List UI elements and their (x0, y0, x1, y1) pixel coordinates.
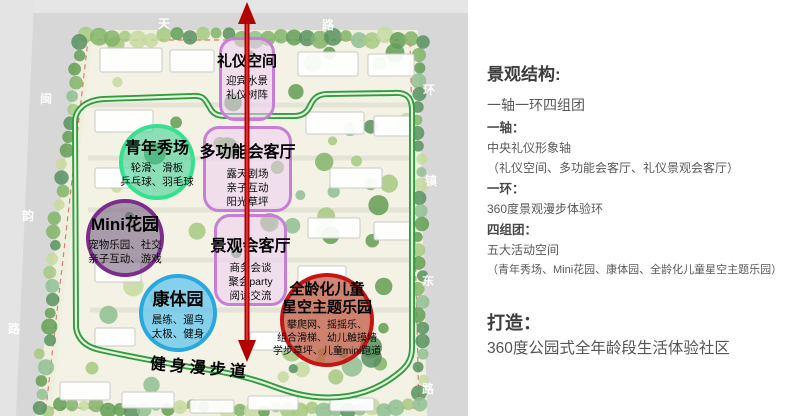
zone-title: 康体园 (153, 285, 204, 310)
zone-items: 露天剧场 亲子互动 阳光草坪 (227, 168, 269, 210)
panel-subtitle: 一轴一环四组团 (487, 96, 781, 114)
zone-item: 聚会party (228, 276, 272, 290)
zone-title: Mini花园 (91, 210, 159, 235)
zone-title: 全龄化儿童 (289, 281, 364, 298)
road-label: 路 (322, 16, 334, 33)
section-clusters-label: 四组团： (487, 223, 781, 237)
zone-fitness-garden: 康体园 晨练、遛鸟 太极、健身 (139, 274, 217, 352)
zone-all-age-children-park: 全龄化儿童 星空主题乐园 攀爬网、摇摇乐、 组合滑梯、幼儿触摸墙 学步草坪、儿童… (280, 273, 374, 367)
zone-item: 礼仪树阵 (226, 89, 268, 103)
zone-item: 露天剧场 (227, 168, 269, 182)
zone-items: 轮滑、滑板 乒乓球、羽毛球 (120, 162, 194, 190)
goal-label: 打造： (487, 311, 781, 335)
zone-items: 攀爬网、摇摇乐、 组合滑梯、幼儿触摸墙 学步草坪、儿童mini跑道 (273, 319, 381, 359)
zone-ceremony-space: 礼仪空间 迎宾水景 礼仪树阵 (219, 37, 275, 121)
slide: 天 路 闽 韵 路 环 镇 东 路 礼仪空间 迎宾水景 礼仪树阵 多功能会客厅 … (0, 0, 789, 416)
zone-items: 晨练、遛鸟 太极、健身 (152, 314, 205, 342)
section-clusters-line: 五大活动空间 (487, 243, 781, 257)
panel-title: 景观结构: (487, 64, 781, 86)
zone-multifunction-lounge: 多功能会客厅 露天剧场 亲子互动 阳光草坪 (203, 126, 292, 212)
zone-title: 多功能会客厅 (200, 138, 296, 162)
zone-landscape-lounge: 景观会客厅 商务会谈 聚会party 阅读交流 (214, 214, 287, 306)
road-label: 路 (422, 380, 434, 397)
goal-text: 360度公园式全年龄段生活体验社区 (487, 339, 781, 359)
zone-mini-garden: Mini花园 宠物乐园、社交 亲子互动、游戏 (86, 199, 164, 277)
site-plan-map: 天 路 闽 韵 路 环 镇 东 路 礼仪空间 迎宾水景 礼仪树阵 多功能会客厅 … (0, 0, 468, 416)
zone-title: 青年秀场 (125, 134, 189, 158)
zone-items: 商务会谈 聚会party 阅读交流 (228, 262, 272, 304)
zone-item: 晨练、遛鸟 (152, 314, 205, 328)
zone-item: 组合滑梯、幼儿触摸墙 (273, 332, 381, 345)
zone-items: 迎宾水景 礼仪树阵 (226, 75, 268, 103)
zone-item: 宠物乐园、社交 (88, 239, 162, 253)
section-ring-label: 一环： (487, 182, 781, 196)
road-label: 韵 (22, 207, 34, 224)
road-label: 东 (422, 272, 434, 289)
zone-item: 亲子互动 (227, 182, 269, 196)
section-axis-line: 中央礼仪形象轴 (487, 141, 781, 155)
road-label: 天 (158, 15, 170, 32)
road-label: 镇 (425, 172, 437, 189)
zone-item: 阅读交流 (228, 290, 272, 304)
structure-text-panel: 景观结构: 一轴一环四组团 一轴： 中央礼仪形象轴 （礼仪空间、多功能会客厅、礼… (468, 0, 789, 416)
road-label: 路 (8, 320, 20, 337)
zone-items: 宠物乐园、社交 亲子互动、游戏 (88, 239, 162, 267)
zone-item: 阳光草坪 (227, 196, 269, 210)
zone-title-line2: 星空主题乐园 (282, 299, 372, 316)
road-label: 闽 (40, 90, 52, 107)
zone-youth-show-ground: 青年秀场 轮滑、滑板 乒乓球、羽毛球 (119, 124, 195, 200)
zone-item: 轮滑、滑板 (120, 162, 194, 176)
zone-item: 太极、健身 (152, 328, 205, 342)
section-ring-line: 360度景观漫步体验环 (487, 202, 781, 216)
zone-item: 商务会谈 (228, 262, 272, 276)
road-label: 环 (423, 81, 435, 98)
zone-item: 攀爬网、摇摇乐、 (273, 319, 381, 332)
zone-item: 迎宾水景 (226, 75, 268, 89)
zone-title: 礼仪空间 (217, 50, 277, 71)
section-axis-line: （礼仪空间、多功能会客厅、礼仪景观会客厅） (487, 161, 781, 175)
section-clusters-line: （青年秀场、Mini花园、康体园、全龄化儿童星空主题乐园） (487, 263, 781, 277)
section-axis-label: 一轴： (487, 121, 781, 135)
zone-item: 乒乓球、羽毛球 (120, 176, 194, 190)
zone-title: 景观会客厅 (211, 232, 291, 256)
zone-item: 亲子互动、游戏 (88, 253, 162, 267)
zone-item: 学步草坪、儿童mini跑道 (273, 345, 381, 358)
